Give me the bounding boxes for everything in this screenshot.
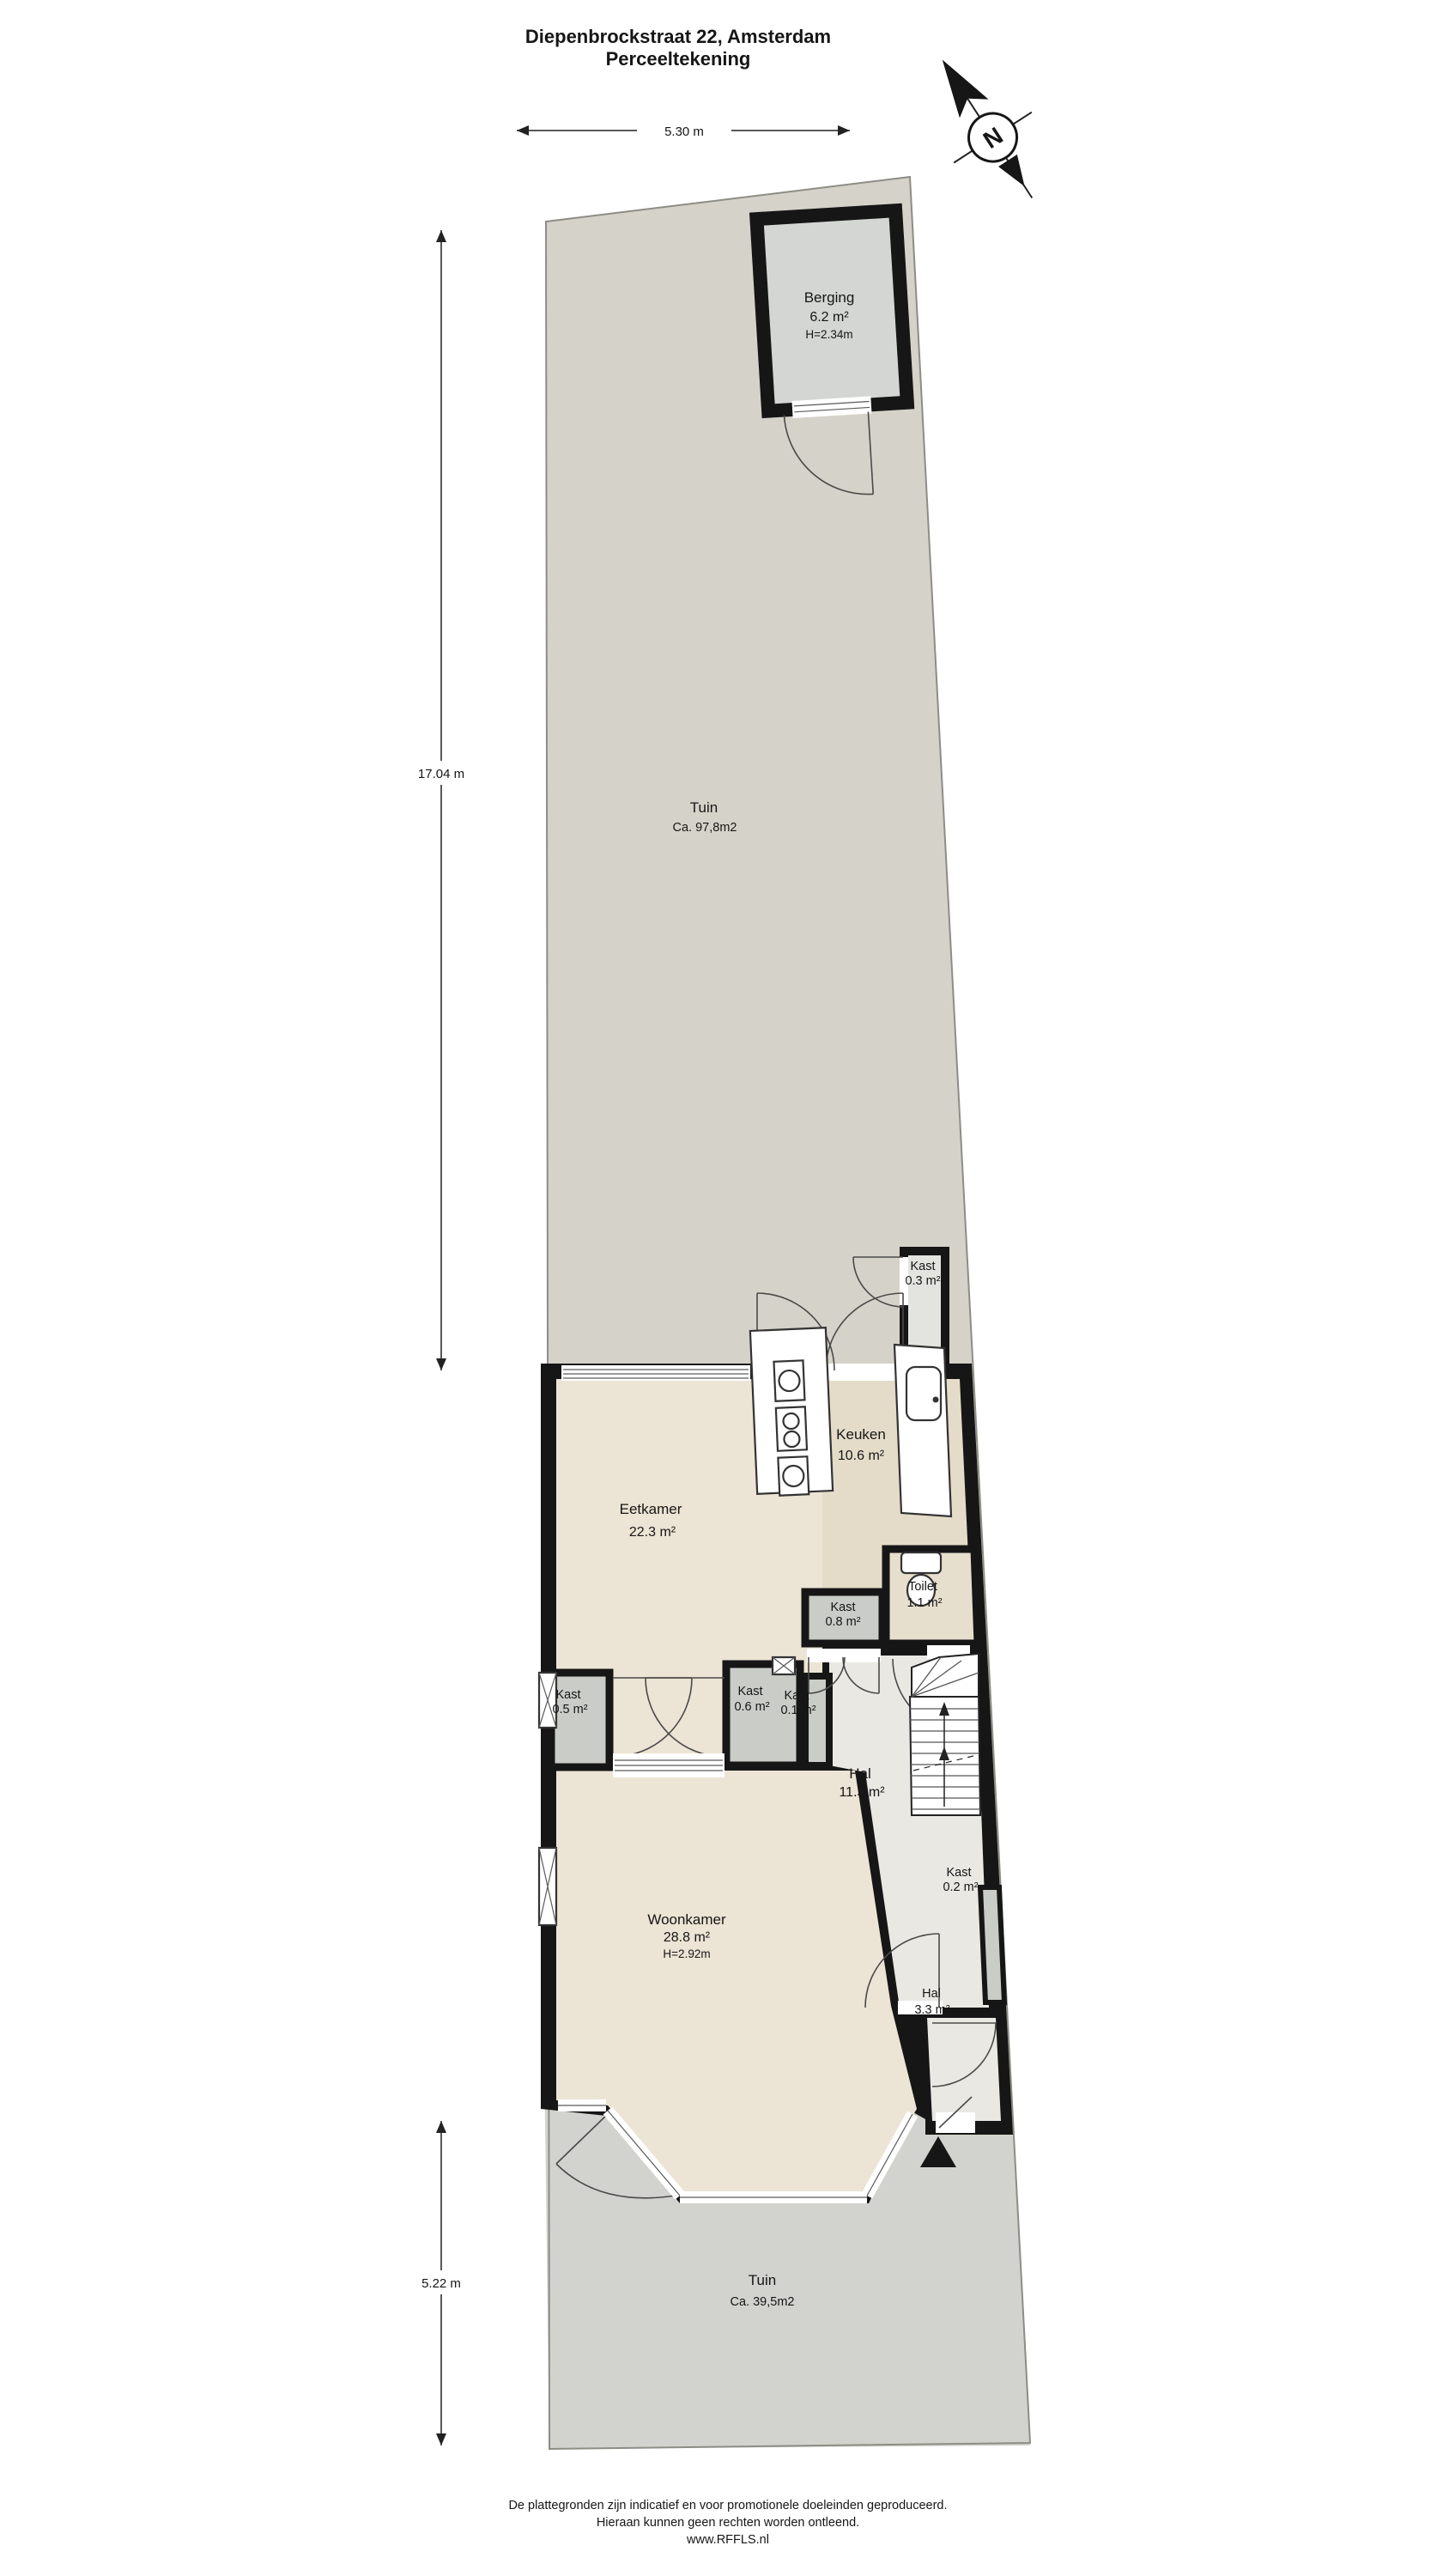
page-title: Diepenbrockstraat 22, Amsterdam <box>525 26 831 47</box>
svg-text:10.6 m²: 10.6 m² <box>838 1449 885 1463</box>
woonkamer-label: Woonkamer <box>647 1911 726 1928</box>
dimension-left-upper: 17.04 m <box>403 230 479 1370</box>
footer-website: www.RFFLS.nl <box>686 2533 769 2547</box>
sidewall-window-1 <box>539 1673 556 1728</box>
svg-text:H=2.92m: H=2.92m <box>663 1947 710 1960</box>
svg-text:3.3 m²: 3.3 m² <box>914 2003 949 2017</box>
svg-text:0.5 m²: 0.5 m² <box>552 1703 587 1716</box>
north-compass: N <box>903 34 1070 223</box>
svg-text:H=2.34m: H=2.34m <box>805 328 852 341</box>
hal-label: Hal <box>849 1765 871 1782</box>
kast01-label: Kast <box>784 1689 809 1703</box>
flue-symbol <box>773 1657 795 1674</box>
kast05-box <box>551 1673 609 1767</box>
front-garden-label: Tuin <box>749 2272 776 2288</box>
svg-text:6.2 m²: 6.2 m² <box>809 310 849 325</box>
sink-icon <box>906 1367 941 1420</box>
eetkamer-window <box>561 1365 750 1381</box>
kast02-label: Kast <box>946 1866 971 1880</box>
back-garden-label: Tuin <box>690 799 718 816</box>
berging-label: Berging <box>804 289 855 306</box>
svg-text:0.1 m²: 0.1 m² <box>780 1704 815 1717</box>
svg-text:0.2 m²: 0.2 m² <box>943 1880 978 1894</box>
dimension-left-upper-label: 17.04 m <box>418 767 464 781</box>
hal33-floor <box>927 2018 1001 2121</box>
eetkamer-label: Eetkamer <box>620 1501 682 1517</box>
svg-text:1.1 m²: 1.1 m² <box>906 1596 942 1610</box>
page-subtitle: Perceeltekening <box>606 48 751 70</box>
svg-text:Ca. 97,8m2: Ca. 97,8m2 <box>673 821 737 835</box>
kast02-box <box>980 1887 1004 2002</box>
dimension-left-lower-label: 5.22 m <box>421 2276 461 2291</box>
keuken-label: Keuken <box>836 1426 886 1443</box>
hal33-label: Hal <box>922 1987 941 2001</box>
dimension-left-lower: 5.22 m <box>405 2121 477 2445</box>
svg-text:0.8 m²: 0.8 m² <box>825 1615 860 1629</box>
footer-disclaimer-1: De plattegronden zijn indicatief en voor… <box>508 2499 947 2512</box>
svg-text:0.6 m²: 0.6 m² <box>734 1700 769 1714</box>
ensuite-doors <box>613 1753 724 1777</box>
staircase <box>910 1654 980 1815</box>
house-floorplan <box>539 1293 1013 2203</box>
footer-disclaimer-2: Hieraan kunnen geen rechten worden ontle… <box>597 2516 859 2530</box>
kast05-label: Kast <box>555 1688 580 1702</box>
svg-text:11.3 m²: 11.3 m² <box>839 1785 885 1800</box>
dimension-top: 5.30 m <box>517 118 850 141</box>
kast06-label: Kast <box>737 1685 762 1698</box>
north-arrow-icon <box>928 51 989 118</box>
woonkamer-side-window <box>539 1848 556 1925</box>
kitchen-island <box>750 1327 833 1497</box>
floorplan-drawing: 5.30 m 17.04 m 5.22 m N Diepenbrockstraa… <box>0 0 1449 2576</box>
floorplan-page: 5.30 m 17.04 m 5.22 m N Diepenbrockstraa… <box>0 0 1449 2576</box>
kast08-label: Kast <box>830 1601 855 1614</box>
svg-text:Ca. 39,5m2: Ca. 39,5m2 <box>731 2295 795 2309</box>
kast03-label: Kast <box>910 1260 935 1273</box>
svg-text:22.3 m²: 22.3 m² <box>629 1525 676 1540</box>
dimension-top-label: 5.30 m <box>664 125 704 139</box>
svg-text:0.3 m²: 0.3 m² <box>905 1274 940 1288</box>
kitchen-counter <box>894 1345 951 1516</box>
burner-icon <box>779 1370 800 1392</box>
svg-text:28.8 m²: 28.8 m² <box>664 1930 711 1945</box>
toilet-label: Toilet <box>908 1580 937 1594</box>
